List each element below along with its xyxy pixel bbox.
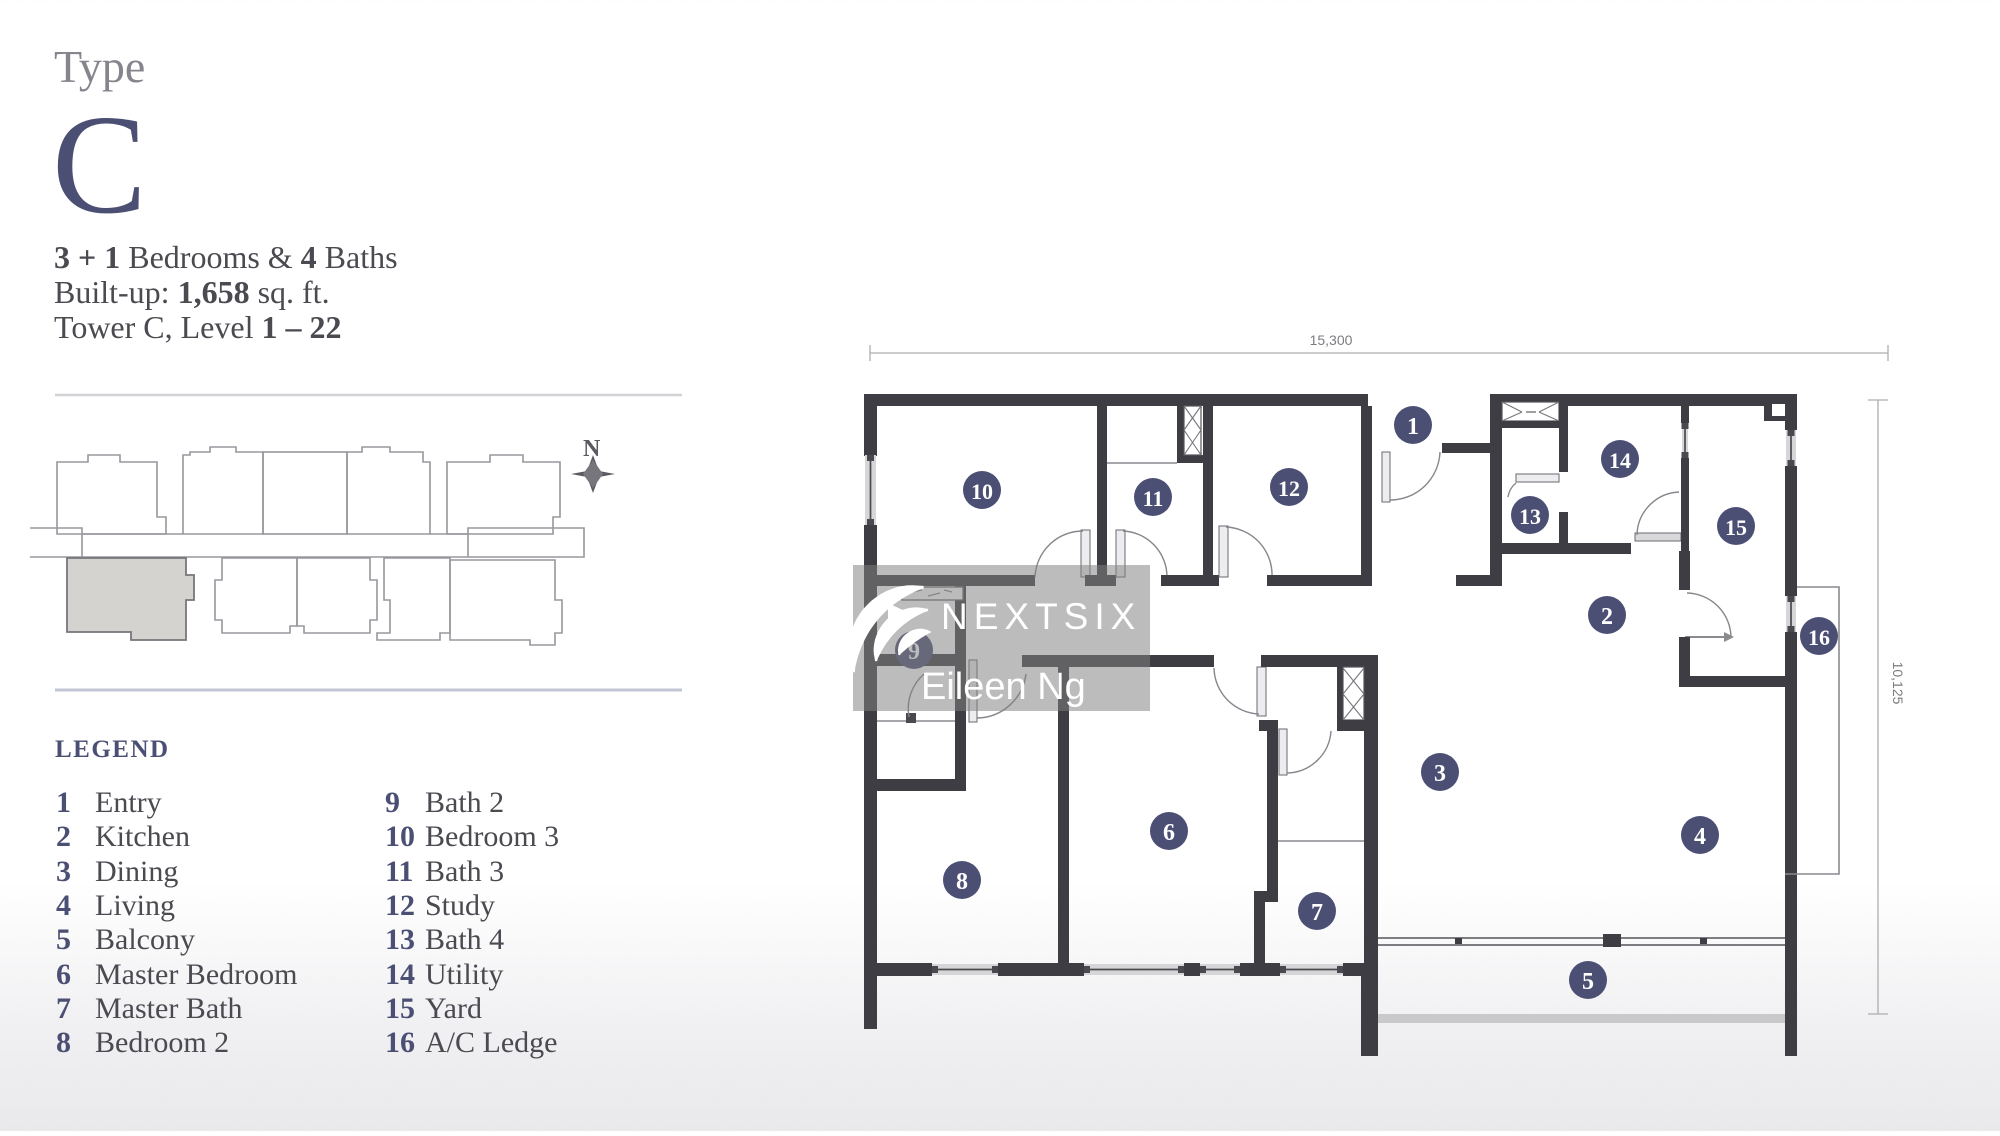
svg-text:Balcony: Balcony bbox=[95, 923, 195, 956]
svg-text:14: 14 bbox=[385, 958, 415, 991]
svg-text:Study: Study bbox=[425, 889, 495, 922]
svg-text:A/C Ledge: A/C Ledge bbox=[425, 1026, 557, 1059]
svg-text:13: 13 bbox=[385, 923, 415, 956]
svg-text:6: 6 bbox=[1163, 820, 1175, 846]
svg-text:1: 1 bbox=[1407, 414, 1419, 440]
svg-text:Master Bath: Master Bath bbox=[95, 992, 242, 1025]
svg-text:6: 6 bbox=[56, 958, 71, 991]
svg-text:11: 11 bbox=[385, 855, 413, 888]
svg-text:Master Bedroom: Master Bedroom bbox=[95, 958, 297, 991]
svg-text:8: 8 bbox=[956, 869, 968, 895]
svg-text:Living: Living bbox=[95, 889, 175, 922]
svg-text:Yard: Yard bbox=[425, 992, 482, 1025]
svg-text:7: 7 bbox=[1311, 900, 1323, 926]
svg-text:10: 10 bbox=[971, 479, 993, 504]
svg-text:Tower C, Level 1 – 22: Tower C, Level 1 – 22 bbox=[54, 309, 341, 345]
svg-text:5: 5 bbox=[56, 923, 71, 956]
svg-text:1: 1 bbox=[56, 786, 71, 819]
svg-text:Dining: Dining bbox=[95, 855, 178, 888]
svg-text:Bath 4: Bath 4 bbox=[425, 923, 504, 956]
svg-text:8: 8 bbox=[56, 1026, 71, 1059]
svg-text:3 + 1 Bedrooms & 4 Baths: 3 + 1 Bedrooms & 4 Baths bbox=[54, 239, 398, 275]
svg-text:Entry: Entry bbox=[95, 786, 162, 819]
svg-text:11: 11 bbox=[1143, 486, 1164, 511]
svg-text:16: 16 bbox=[385, 1026, 415, 1059]
svg-text:12: 12 bbox=[385, 889, 415, 922]
svg-text:15: 15 bbox=[385, 992, 415, 1025]
svg-text:Eileen Ng: Eileen Ng bbox=[921, 666, 1086, 708]
svg-text:Bath 3: Bath 3 bbox=[425, 855, 504, 888]
svg-text:10: 10 bbox=[385, 820, 415, 853]
svg-text:13: 13 bbox=[1519, 504, 1541, 529]
svg-text:7: 7 bbox=[56, 992, 71, 1025]
svg-text:Bath 2: Bath 2 bbox=[425, 786, 504, 819]
svg-text:3: 3 bbox=[1434, 761, 1446, 787]
svg-text:4: 4 bbox=[1694, 824, 1706, 850]
svg-text:Built-up: 1,658 sq. ft.: Built-up: 1,658 sq. ft. bbox=[54, 274, 330, 310]
svg-text:C: C bbox=[52, 85, 147, 243]
svg-text:16: 16 bbox=[1808, 625, 1830, 650]
svg-text:Utility: Utility bbox=[425, 958, 503, 991]
svg-text:4: 4 bbox=[56, 889, 71, 922]
svg-text:3: 3 bbox=[56, 855, 71, 888]
svg-text:15,300: 15,300 bbox=[1310, 332, 1353, 348]
svg-text:5: 5 bbox=[1582, 969, 1594, 995]
svg-text:Bedroom 3: Bedroom 3 bbox=[425, 820, 559, 853]
svg-text:Bedroom 2: Bedroom 2 bbox=[95, 1026, 229, 1059]
svg-text:14: 14 bbox=[1609, 448, 1631, 473]
svg-text:9: 9 bbox=[385, 786, 400, 819]
svg-text:Kitchen: Kitchen bbox=[95, 820, 190, 853]
svg-text:15: 15 bbox=[1725, 515, 1747, 540]
svg-text:NEXTSIX: NEXTSIX bbox=[941, 596, 1141, 637]
svg-text:2: 2 bbox=[56, 820, 71, 853]
svg-text:LEGEND: LEGEND bbox=[55, 736, 170, 763]
svg-text:12: 12 bbox=[1278, 476, 1300, 501]
svg-text:2: 2 bbox=[1601, 604, 1613, 630]
svg-text:10,125: 10,125 bbox=[1890, 662, 1906, 705]
